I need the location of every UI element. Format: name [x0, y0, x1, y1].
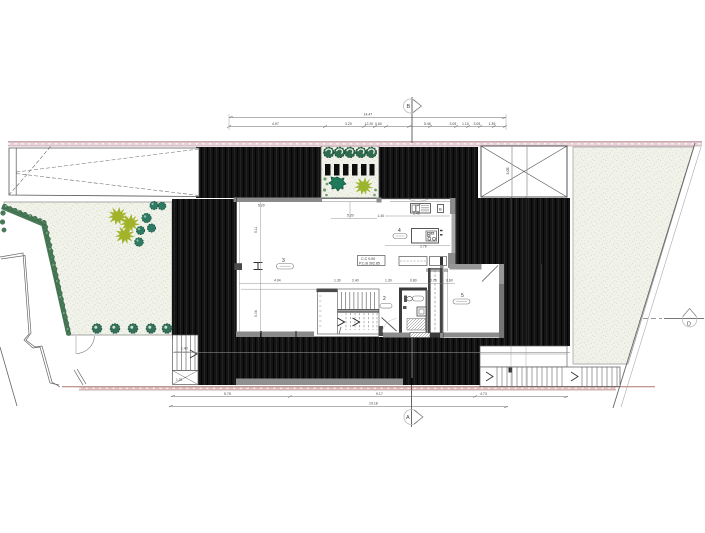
- svg-text:0.80: 0.80: [410, 279, 417, 283]
- svg-text:B: B: [439, 207, 442, 212]
- svg-text:0.75: 0.75: [430, 279, 437, 283]
- svg-text:2.76: 2.76: [420, 245, 427, 249]
- svg-text:5.11: 5.11: [254, 227, 258, 233]
- svg-text:3.05: 3.05: [506, 168, 510, 175]
- svg-text:5.75: 5.75: [224, 392, 231, 396]
- svg-text:A: A: [406, 415, 410, 421]
- svg-text:5: 5: [461, 293, 464, 299]
- svg-text:P.C.B 302.85: P.C.B 302.85: [359, 262, 380, 266]
- svg-text:2.40: 2.40: [352, 279, 359, 283]
- svg-text:3: 3: [282, 258, 285, 264]
- svg-text:3.20: 3.20: [345, 122, 352, 126]
- svg-text:1.29: 1.29: [176, 378, 182, 382]
- svg-text:5.20: 5.20: [258, 204, 265, 208]
- svg-text:5.46: 5.46: [424, 122, 431, 126]
- svg-text:4: 4: [398, 228, 401, 234]
- svg-text:B: B: [407, 104, 411, 110]
- svg-text:3.05: 3.05: [474, 122, 481, 126]
- svg-text:1.30: 1.30: [385, 279, 392, 283]
- svg-text:1.10: 1.10: [462, 122, 469, 126]
- svg-text:0.60: 0.60: [375, 122, 382, 126]
- svg-text:5.20: 5.20: [347, 214, 354, 218]
- svg-text:5.04: 5.04: [254, 310, 258, 317]
- svg-text:1.40: 1.40: [181, 347, 188, 351]
- svg-text:3.05: 3.05: [450, 122, 457, 126]
- svg-text:4.97: 4.97: [272, 122, 279, 126]
- svg-text:4.73: 4.73: [480, 392, 487, 396]
- svg-text:9.17: 9.17: [376, 392, 383, 396]
- svg-text:5.48: 5.48: [413, 212, 420, 216]
- svg-text:14.47: 14.47: [364, 113, 373, 117]
- svg-text:19.18: 19.18: [369, 402, 378, 406]
- svg-text:2: 2: [383, 296, 386, 302]
- svg-text:1.30: 1.30: [334, 279, 341, 283]
- svg-text:1.35: 1.35: [489, 122, 496, 126]
- svg-text:D: D: [687, 322, 691, 328]
- svg-text:0.60: 0.60: [446, 279, 453, 283]
- svg-text:C.C 0.00: C.C 0.00: [361, 257, 375, 261]
- svg-text:12.20: 12.20: [365, 122, 374, 126]
- svg-text:4.04: 4.04: [274, 279, 281, 283]
- svg-text:1.40: 1.40: [378, 214, 385, 218]
